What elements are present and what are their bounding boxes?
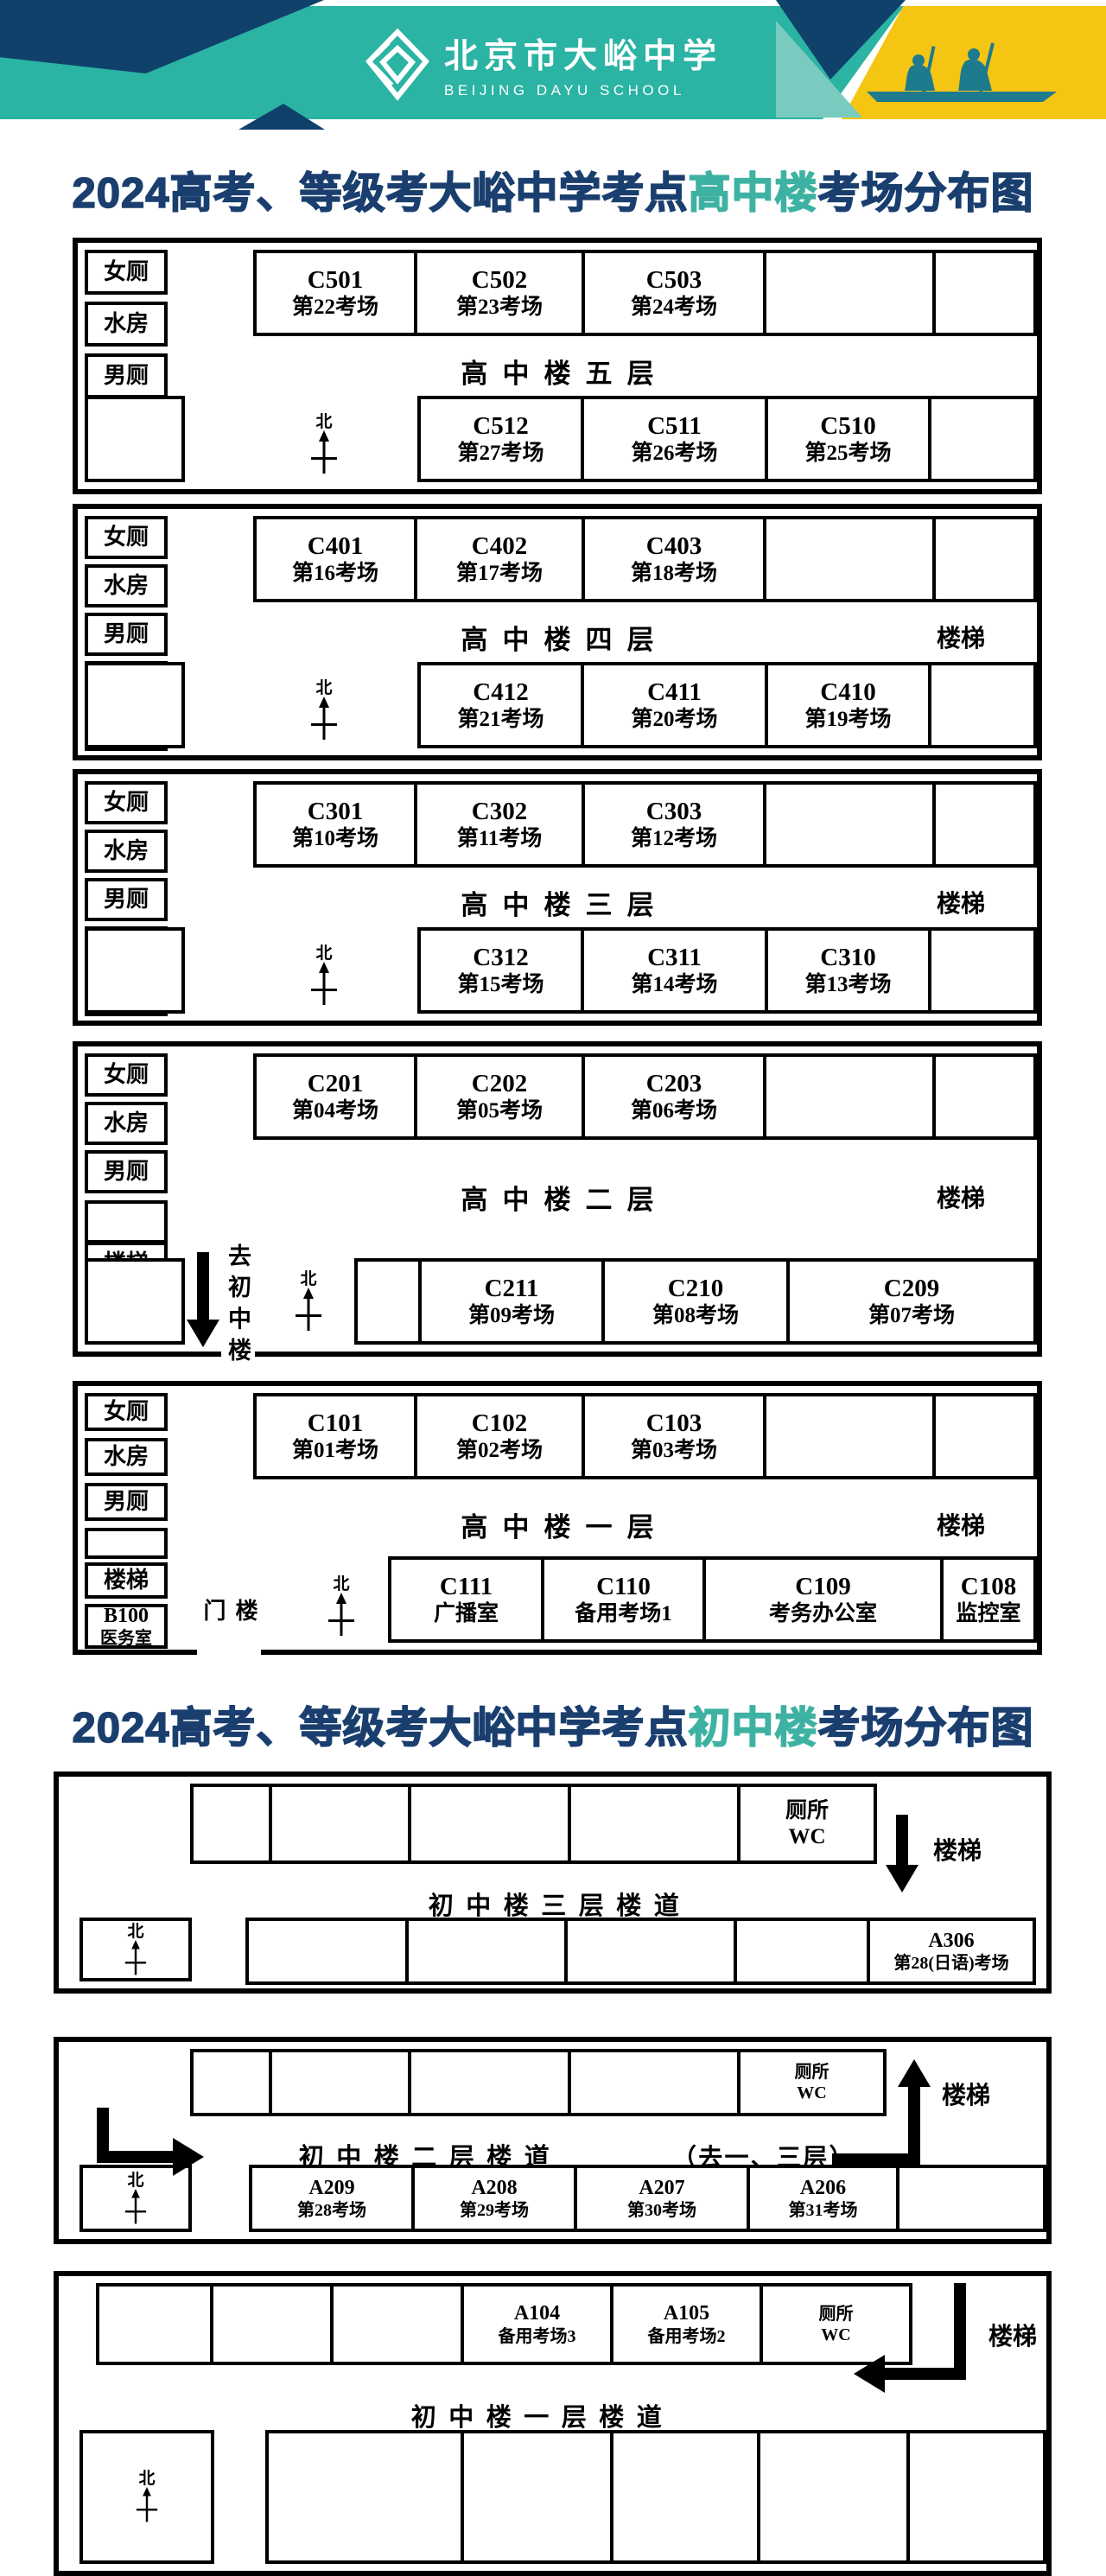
empty-cell [568, 2049, 741, 2116]
room-label: 第02考场 [456, 1438, 543, 1464]
room-a209: A209 第28考场 [249, 2165, 415, 2232]
compass-arrow-icon [123, 2189, 149, 2225]
room-code: C201 [308, 1069, 363, 1099]
room-c311: C311 第14考场 [581, 927, 768, 1014]
compass-arrow-icon [294, 1288, 323, 1333]
toilet-cell: 厕所 WC [737, 1784, 877, 1864]
empty-cell [763, 781, 936, 868]
room-c512: C512 第27考场 [417, 396, 584, 482]
arrow-bar [896, 1815, 908, 1865]
room-label: 第26考场 [631, 441, 717, 467]
empty-cell [330, 2283, 464, 2365]
room-label: 第20考场 [631, 707, 717, 733]
compass-arrow-icon [123, 1940, 149, 1976]
room-label: 广播室 [434, 1601, 499, 1627]
room-a104: A104 备用考场3 [461, 2283, 613, 2365]
room-code: C209 [884, 1274, 939, 1304]
room-label: 第30考场 [627, 2200, 696, 2221]
hs-map-title: 2024高考、等级考大峪中学考点高中楼考场分布图 [0, 159, 1106, 220]
room-a306: A306 第28(日语)考场 [867, 1918, 1036, 1985]
room-a206: A206 第31考场 [747, 2165, 899, 2232]
room-label: 备用考场3 [499, 2326, 576, 2347]
building-gate-label: 楼门 [197, 1599, 261, 1656]
women-toilet-cell: 女厕 [85, 1053, 168, 1097]
room-c111: C111 广播室 [388, 1556, 544, 1643]
hs-floor-3: 女厕 水房 男厕 楼梯 C301 第10考场 C302 第11考场 C303 第… [73, 769, 1042, 1026]
water-room-cell: 水房 [85, 830, 168, 873]
empty-cell [610, 2430, 760, 2564]
north-label: 北 [333, 1576, 349, 1593]
room-c501: C501 第22考场 [253, 250, 417, 336]
room-label: 第15考场 [457, 972, 543, 998]
room-code: C101 [308, 1409, 363, 1439]
stairs-label: 楼梯 [937, 1507, 985, 1542]
empty-cell [906, 2430, 1046, 2564]
room-code: C301 [308, 797, 363, 827]
room-code: C401 [308, 531, 363, 562]
empty-cell [763, 1053, 936, 1140]
toilet-label-en: WC [821, 2325, 850, 2345]
north-label: 北 [127, 1924, 143, 1940]
room-code: C108 [961, 1572, 1016, 1602]
room-label: 第24考场 [631, 295, 717, 321]
room-label: 第03考场 [631, 1438, 717, 1464]
room-label: 第25考场 [804, 441, 891, 467]
stairs-label: 楼梯 [937, 1180, 985, 1214]
room-code: C111 [440, 1572, 493, 1602]
stairs-label: 楼梯 [937, 620, 985, 654]
empty-cell [190, 1784, 272, 1864]
room-c202: C202 第05考场 [414, 1053, 585, 1140]
room-c103: C103 第03考场 [582, 1393, 766, 1479]
room-code: A208 [471, 2176, 517, 2201]
room-c211: C211 第09考场 [418, 1258, 605, 1345]
empty-cell [85, 662, 185, 748]
room-label: 第04考场 [292, 1098, 378, 1124]
room-label: 第07考场 [868, 1303, 955, 1329]
room-code: C102 [472, 1409, 527, 1439]
empty-cell [568, 1784, 741, 1864]
north-compass: 北 [309, 945, 339, 1007]
toilet-label-en: WC [788, 1824, 825, 1850]
arrow-head-down [886, 1865, 918, 1892]
room-c402: C402 第17考场 [414, 516, 585, 602]
entry-arrow-head-right [173, 2138, 204, 2176]
toilet-label-en: WC [797, 2083, 826, 2103]
title-suffix: 考场分布图 [818, 170, 1034, 217]
room-label: 第18考场 [631, 561, 717, 587]
room-label: 第09考场 [468, 1303, 555, 1329]
corridor-label: 高中楼一层 [78, 1505, 1037, 1544]
room-label: 第05考场 [456, 1098, 543, 1124]
room-code: C203 [646, 1069, 702, 1099]
north-compass: 北 [309, 680, 339, 741]
empty-cell [269, 2049, 411, 2116]
stairs-up-arrow-head [898, 2059, 931, 2087]
room-c303: C303 第12考场 [582, 781, 766, 868]
stairs-label: 楼梯 [988, 2318, 1037, 2352]
arrow-elbow-horizontal [832, 2153, 920, 2166]
school-logo-icon [363, 28, 432, 102]
room-c203: C203 第06考场 [582, 1053, 766, 1140]
room-label: 第31考场 [789, 2200, 858, 2221]
room-code: C211 [485, 1274, 539, 1304]
room-c511: C511 第26考场 [581, 396, 768, 482]
title-prefix: 2024高考、等级考大峪中学考点 [72, 170, 688, 217]
room-label: 第12考场 [631, 826, 717, 852]
empty-cell [85, 927, 185, 1014]
title-highlight: 高中楼 [688, 170, 817, 217]
corridor-label: 初中楼三层楼道 [197, 1886, 923, 1922]
room-c108: C108 监控室 [940, 1556, 1037, 1643]
stairs-arrow-head-left [854, 2355, 885, 2393]
room-code: C503 [646, 265, 702, 296]
empty-cell [763, 516, 936, 602]
room-label: 备用考场2 [648, 2326, 726, 2347]
empty-cell [896, 2165, 1046, 2232]
empty-cell [932, 1053, 1037, 1140]
room-code: C412 [473, 677, 528, 708]
stairs-down-arrow [886, 1815, 918, 1892]
arrow-head-down [187, 1320, 219, 1347]
empty-cell [928, 396, 1037, 482]
to-junior-building-arrow [187, 1252, 219, 1347]
room-code: A206 [800, 2176, 846, 2201]
room-label: 第01考场 [292, 1438, 378, 1464]
empty-cell [932, 250, 1037, 336]
room-label: 备用考场1 [575, 1601, 672, 1627]
room-c101: C101 第01考场 [253, 1393, 417, 1479]
js-map-title: 2024高考、等级考大峪中学考点初中楼考场分布图 [0, 1694, 1106, 1755]
empty-cell [245, 1918, 409, 1985]
room-label: 第10考场 [292, 826, 378, 852]
empty-cell [405, 1918, 568, 1985]
room-label: 第16考场 [292, 561, 378, 587]
north-label: 北 [300, 1271, 316, 1288]
empty-cell [932, 781, 1037, 868]
room-c412: C412 第21考场 [417, 662, 584, 748]
water-room-cell: 水房 [85, 564, 168, 607]
room-code: C502 [472, 265, 527, 296]
empty-cell [269, 1784, 411, 1864]
rowers-illustration-icon [851, 41, 1067, 112]
school-name-en: BEIJING DAYU SCHOOL [444, 82, 722, 99]
compass-arrow-icon [327, 1593, 356, 1638]
room-label: 第28考场 [297, 2200, 366, 2221]
arrow-bar [197, 1252, 209, 1320]
north-label: 北 [315, 945, 332, 962]
room-code: A306 [928, 1929, 974, 1954]
room-code: C109 [795, 1572, 850, 1602]
room-label: 第23考场 [456, 295, 543, 321]
room-code: C501 [308, 265, 363, 296]
empty-cell [932, 1393, 1037, 1479]
water-room-cell: 水房 [85, 1102, 168, 1145]
medical-room-cell: B100 医务室 [85, 1604, 168, 1649]
room-code: C510 [820, 411, 875, 442]
room-label: 第21考场 [457, 707, 543, 733]
room-label: 第19考场 [804, 707, 891, 733]
north-label: 北 [315, 680, 332, 696]
empty-cell [85, 396, 185, 482]
north-label: 北 [127, 2172, 143, 2189]
title-prefix: 2024高考、等级考大峪中学考点 [72, 1705, 688, 1752]
empty-cell [928, 662, 1037, 748]
school-name: 北京市大峪中学 BEIJING DAYU SCHOOL [444, 29, 722, 99]
room-a208: A208 第29考场 [411, 2165, 577, 2232]
empty-cell [354, 1258, 422, 1345]
empty-cell [408, 1784, 571, 1864]
room-label: 考务办公室 [769, 1601, 877, 1627]
women-toilet-cell: 女厕 [85, 781, 168, 824]
entry-arrow-horizontal [97, 2151, 175, 2163]
stairs-arrow-vertical [954, 2283, 966, 2380]
empty-cell [210, 2283, 334, 2365]
empty-cell [564, 1918, 737, 1985]
empty-cell [763, 250, 936, 336]
women-toilet-cell: 女厕 [85, 1393, 168, 1431]
room-label: 第14考场 [631, 972, 717, 998]
room-c502: C502 第23考场 [414, 250, 585, 336]
room-c102: C102 第02考场 [414, 1393, 585, 1479]
title-suffix: 考场分布图 [818, 1705, 1034, 1752]
north-compass: 北 [123, 2172, 149, 2225]
women-toilet-cell: 女厕 [85, 516, 168, 559]
stairs-label: 楼梯 [933, 1832, 982, 1867]
room-label: 第08考场 [652, 1303, 739, 1329]
corridor-label: 初中楼一层楼道 [188, 2397, 897, 2433]
room-c312: C312 第15考场 [417, 927, 584, 1014]
room-code: A105 [664, 2301, 709, 2326]
water-room-cell: 水房 [85, 1438, 168, 1476]
room-code: C410 [820, 677, 875, 708]
js-floor-3: 厕所 WC 楼梯 初中楼三层楼道 北 A306 第28(日语)考场 [54, 1771, 1052, 1994]
js-floor-1: A104 备用考场3 A105 备用考场2 厕所 WC 楼梯 初中楼一层楼道 北 [54, 2271, 1052, 2576]
empty-cell [96, 2283, 213, 2365]
room-c209: C209 第07考场 [786, 1258, 1037, 1345]
stairs-label: 楼梯 [942, 2077, 990, 2111]
north-compass: 北 [309, 414, 339, 475]
room-c403: C403 第18考场 [582, 516, 766, 602]
empty-cell [265, 2430, 464, 2564]
room-code: C403 [646, 531, 702, 562]
room-c503: C503 第24考场 [582, 250, 766, 336]
north-label: 北 [315, 414, 332, 430]
room-c201: C201 第04考场 [253, 1053, 417, 1140]
corridor-label: 高中楼五层 [78, 352, 1037, 391]
header-banner: 北京市大峪中学 BEIJING DAYU SCHOOL [0, 0, 1106, 130]
room-label: 第06考场 [631, 1098, 717, 1124]
empty-cell [408, 2049, 571, 2116]
stairs-label: 楼梯 [937, 885, 985, 919]
room-label: 第17考场 [456, 561, 543, 587]
room-c210: C210 第08考场 [601, 1258, 790, 1345]
room-c301: C301 第10考场 [253, 781, 417, 868]
empty-cell [928, 927, 1037, 1014]
room-code: A207 [639, 2176, 684, 2201]
room-c110: C110 备用考场1 [541, 1556, 706, 1643]
room-code: C411 [647, 677, 702, 708]
compass-arrow-icon [309, 962, 339, 1007]
room-c410: C410 第19考场 [765, 662, 931, 748]
room-code: C202 [472, 1069, 527, 1099]
room-code: C303 [646, 797, 702, 827]
empty-cell [85, 1258, 185, 1345]
room-c310: C310 第13考场 [765, 927, 931, 1014]
compass-arrow-icon [309, 696, 339, 741]
empty-cell [190, 2049, 272, 2116]
js-floor-2: 厕所 WC 楼梯 初中楼二层楼道 （去一、三层） 北 A209 第28考场 A2… [54, 2037, 1052, 2244]
north-compass-cell: 北 [79, 2430, 214, 2564]
corridor-label: 高中楼四层 [78, 618, 1037, 657]
room-a105: A105 备用考场2 [610, 2283, 763, 2365]
room-c302: C302 第11考场 [414, 781, 585, 868]
room-code: C402 [472, 531, 527, 562]
room-label: 第29考场 [460, 2200, 529, 2221]
compass-arrow-icon [309, 430, 339, 475]
compass-arrow-icon [134, 2487, 160, 2523]
room-label: 第28(日语)考场 [893, 1953, 1008, 1974]
room-code: B100 [104, 1604, 149, 1629]
room-code: A209 [308, 2176, 354, 2201]
school-name-cn: 北京市大峪中学 [444, 29, 722, 78]
room-label: 第11考场 [457, 826, 543, 852]
hs-floor-1: 女厕 水房 男厕 楼梯 B100 医务室 楼门 C101 第01考场 C102 … [73, 1381, 1042, 1655]
to-junior-building-label: 去初中楼 [221, 1243, 255, 1373]
room-code: C312 [473, 943, 528, 973]
room-c109: C109 考务办公室 [702, 1556, 944, 1643]
room-code: C311 [647, 943, 702, 973]
title-highlight: 初中楼 [688, 1705, 817, 1752]
room-label: 第22考场 [292, 295, 378, 321]
room-code: C310 [820, 943, 875, 973]
room-code: C210 [668, 1274, 723, 1304]
hs-floor-4: 女厕 水房 男厕 楼梯 C401 第16考场 C402 第17考场 C403 第… [73, 504, 1042, 760]
toilet-cell: 厕所 WC [737, 2049, 887, 2116]
empty-cell [932, 516, 1037, 602]
north-label: 北 [138, 2471, 155, 2487]
toilet-label-cn: 厕所 [819, 2304, 854, 2325]
empty-cell [763, 1393, 936, 1479]
hs-floor-2: 女厕 水房 男厕 楼梯 C201 第04考场 C202 第05考场 C203 第… [73, 1041, 1042, 1357]
room-code: C110 [596, 1572, 651, 1602]
corridor-label: 高中楼二层 [78, 1178, 1037, 1217]
room-code: C511 [647, 411, 702, 442]
room-code: C512 [473, 411, 528, 442]
room-label: 第27考场 [457, 441, 543, 467]
north-compass: 北 [134, 2471, 160, 2523]
room-code: C302 [472, 797, 527, 827]
water-room-cell: 水房 [85, 302, 168, 347]
room-label: 医务室 [100, 1628, 152, 1649]
toilet-label-cn: 厕所 [795, 2062, 829, 2083]
north-compass: 北 [123, 1924, 149, 1976]
toilet-cell: 厕所 WC [760, 2283, 912, 2365]
corridor-label: 高中楼三层 [78, 883, 1037, 922]
hs-floor-5: 女厕 水房 男厕 C501 第22考场 C502 第23考场 C503 第24考… [73, 238, 1042, 494]
stairs-cell: 楼梯 [85, 1562, 168, 1599]
north-compass: 北 [327, 1576, 356, 1638]
room-label: 监控室 [956, 1601, 1020, 1627]
stairs-arrow-horizontal [885, 2368, 966, 2380]
arrow-bar [908, 2085, 920, 2131]
room-c510: C510 第25考场 [765, 396, 931, 482]
women-toilet-cell: 女厕 [85, 250, 168, 295]
north-compass: 北 [294, 1271, 323, 1333]
empty-cell [734, 1918, 870, 1985]
room-c401: C401 第16考场 [253, 516, 417, 602]
toilet-label-cn: 厕所 [785, 1798, 829, 1824]
empty-cell [757, 2430, 910, 2564]
room-c411: C411 第20考场 [581, 662, 768, 748]
room-a207: A207 第30考场 [574, 2165, 750, 2232]
north-compass-cell: 北 [79, 1918, 192, 1981]
empty-cell [461, 2430, 613, 2564]
room-code: C103 [646, 1409, 702, 1439]
room-code: A104 [514, 2301, 560, 2326]
room-label: 第13考场 [804, 972, 891, 998]
